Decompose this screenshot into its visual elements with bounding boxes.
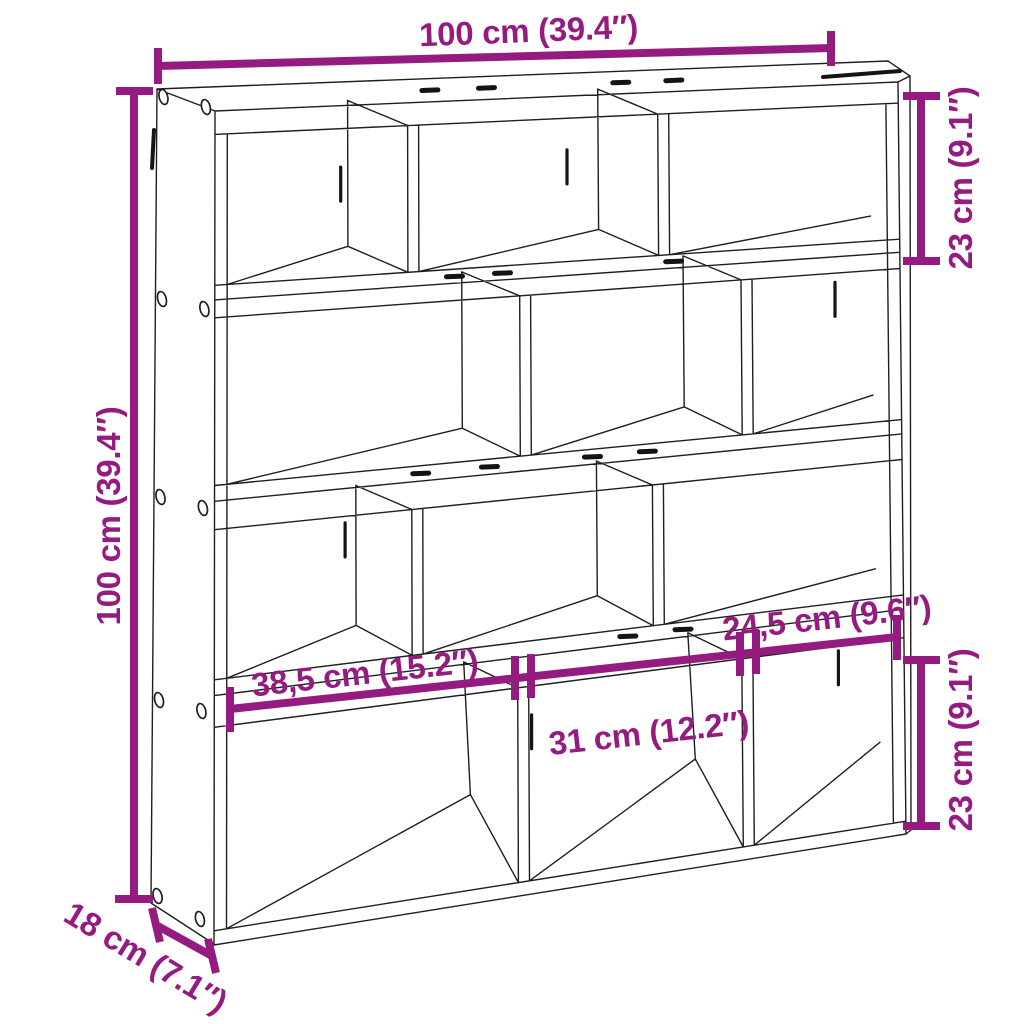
dimension-lines (115, 31, 940, 973)
shelf-dimension-diagram: 100 cm (39.4″) 100 cm (39.4″) 23 cm (9.1… (0, 0, 1024, 1024)
diagram-canvas: 100 cm (39.4″) 100 cm (39.4″) 23 cm (9.1… (0, 0, 1024, 1024)
dimension-strokes (115, 31, 940, 973)
screw-hole (153, 692, 165, 709)
screw-hole (156, 291, 168, 308)
screw-hole (200, 99, 212, 116)
dim-label-top-cube-height: 23 cm (9.1″) (942, 87, 979, 270)
dim-label-overall-height: 100 cm (39.4″) (90, 407, 127, 626)
screw-hole (154, 489, 166, 506)
dim-label-compartment-middle-width: 31 cm (12.2″) (547, 703, 751, 762)
dim-label-overall-width: 100 cm (39.4″) (418, 8, 638, 54)
screw-hole (157, 89, 169, 106)
shelf-strokes (151, 61, 911, 945)
screw-hole (194, 911, 206, 928)
shelf-line-art (151, 61, 911, 945)
screw-hole (195, 703, 207, 720)
dim-label-bottom-cube-height: 23 cm (9.1″) (942, 649, 979, 832)
screw-hole (197, 500, 209, 517)
screw-hole (198, 301, 210, 318)
board-slot-marks (413, 80, 691, 637)
screw-hole (152, 888, 164, 905)
